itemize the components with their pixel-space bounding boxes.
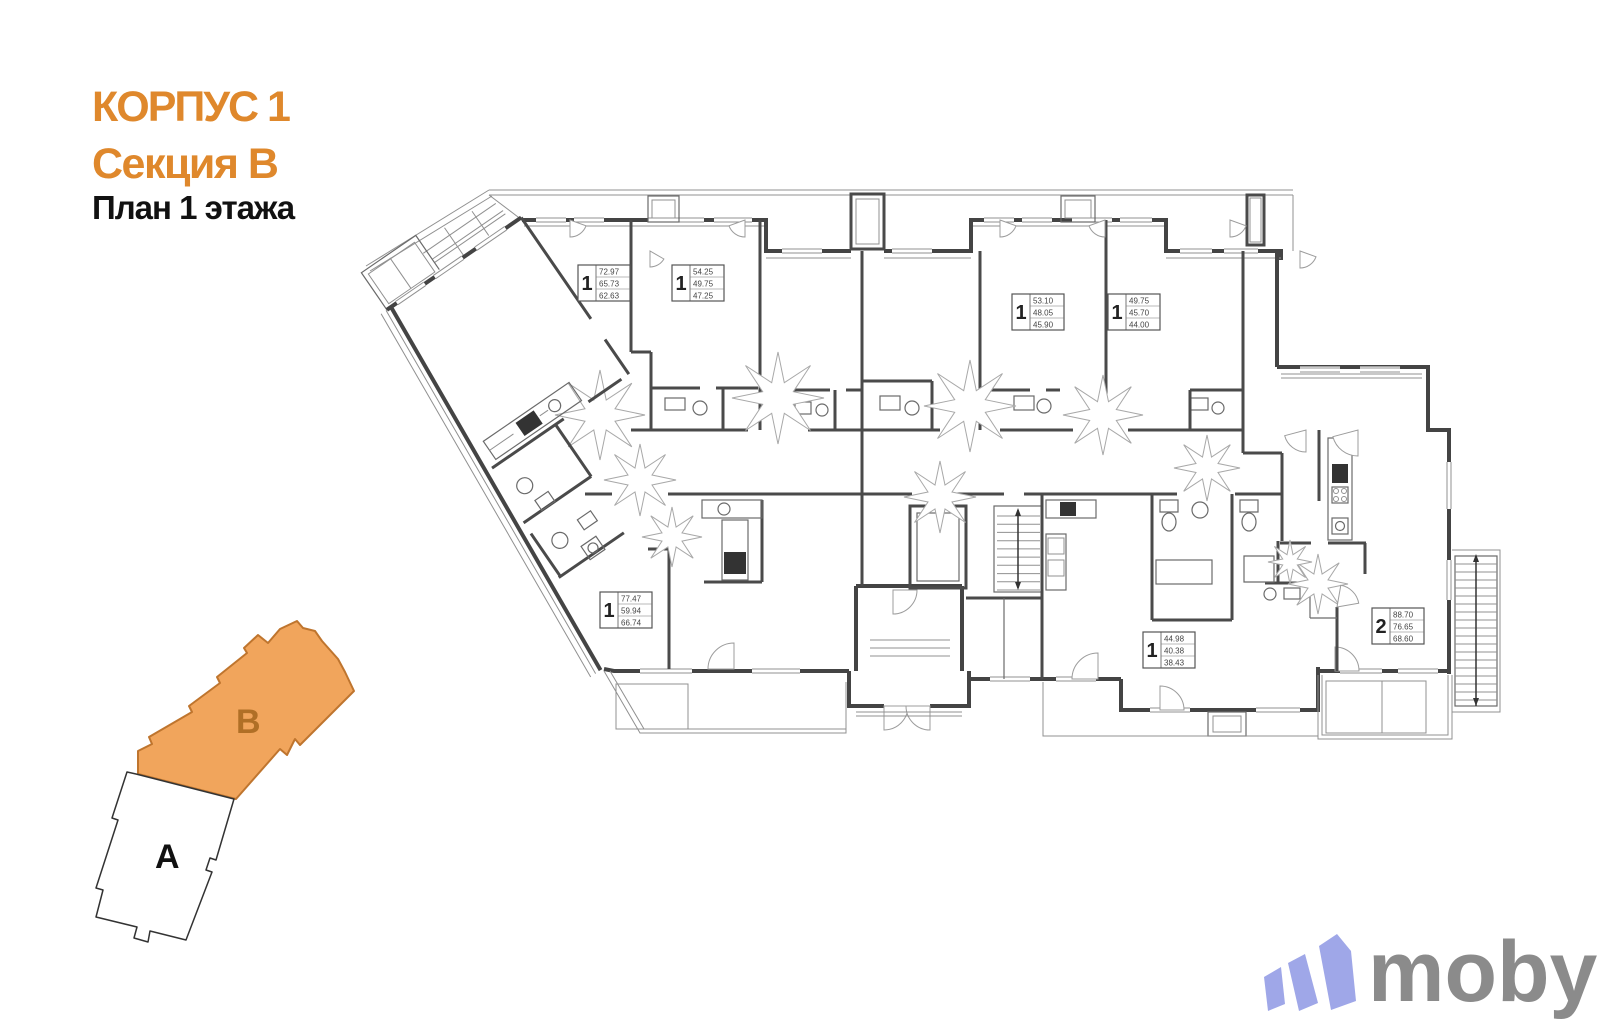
svg-text:План 1 этажа: План 1 этажа bbox=[92, 189, 296, 226]
svg-text:59.94: 59.94 bbox=[621, 607, 642, 616]
svg-text:49.75: 49.75 bbox=[693, 280, 714, 289]
svg-text:1: 1 bbox=[603, 600, 614, 622]
svg-text:44.00: 44.00 bbox=[1129, 321, 1150, 330]
svg-text:66.74: 66.74 bbox=[621, 619, 642, 628]
svg-text:88.70: 88.70 bbox=[1393, 611, 1414, 620]
svg-text:moby: moby bbox=[1368, 924, 1598, 1020]
svg-text:1: 1 bbox=[1015, 302, 1026, 324]
svg-text:47.25: 47.25 bbox=[693, 292, 714, 301]
svg-text:2: 2 bbox=[1375, 616, 1386, 638]
svg-text:КОРПУС 1: КОРПУС 1 bbox=[92, 83, 290, 131]
svg-text:1: 1 bbox=[675, 273, 686, 295]
svg-text:Секция B: Секция B bbox=[92, 140, 278, 188]
svg-text:1: 1 bbox=[581, 273, 592, 295]
svg-text:38.43: 38.43 bbox=[1164, 659, 1185, 668]
svg-text:48.05: 48.05 bbox=[1033, 309, 1054, 318]
svg-text:77.47: 77.47 bbox=[621, 595, 642, 604]
svg-text:45.70: 45.70 bbox=[1129, 309, 1150, 318]
svg-text:49.75: 49.75 bbox=[1129, 297, 1150, 306]
svg-text:40.38: 40.38 bbox=[1164, 647, 1185, 656]
svg-text:53.10: 53.10 bbox=[1033, 297, 1054, 306]
svg-text:1: 1 bbox=[1146, 640, 1157, 662]
svg-text:68.60: 68.60 bbox=[1393, 635, 1414, 644]
svg-text:62.63: 62.63 bbox=[599, 292, 620, 301]
svg-text:65.73: 65.73 bbox=[599, 280, 620, 289]
svg-text:45.90: 45.90 bbox=[1033, 321, 1054, 330]
svg-text:44.98: 44.98 bbox=[1164, 635, 1185, 644]
svg-text:1: 1 bbox=[1111, 302, 1122, 324]
svg-text:54.25: 54.25 bbox=[693, 268, 714, 277]
svg-text:76.65: 76.65 bbox=[1393, 623, 1414, 632]
svg-text:B: B bbox=[236, 703, 261, 741]
svg-text:A: A bbox=[155, 838, 180, 876]
svg-text:72.97: 72.97 bbox=[599, 268, 620, 277]
